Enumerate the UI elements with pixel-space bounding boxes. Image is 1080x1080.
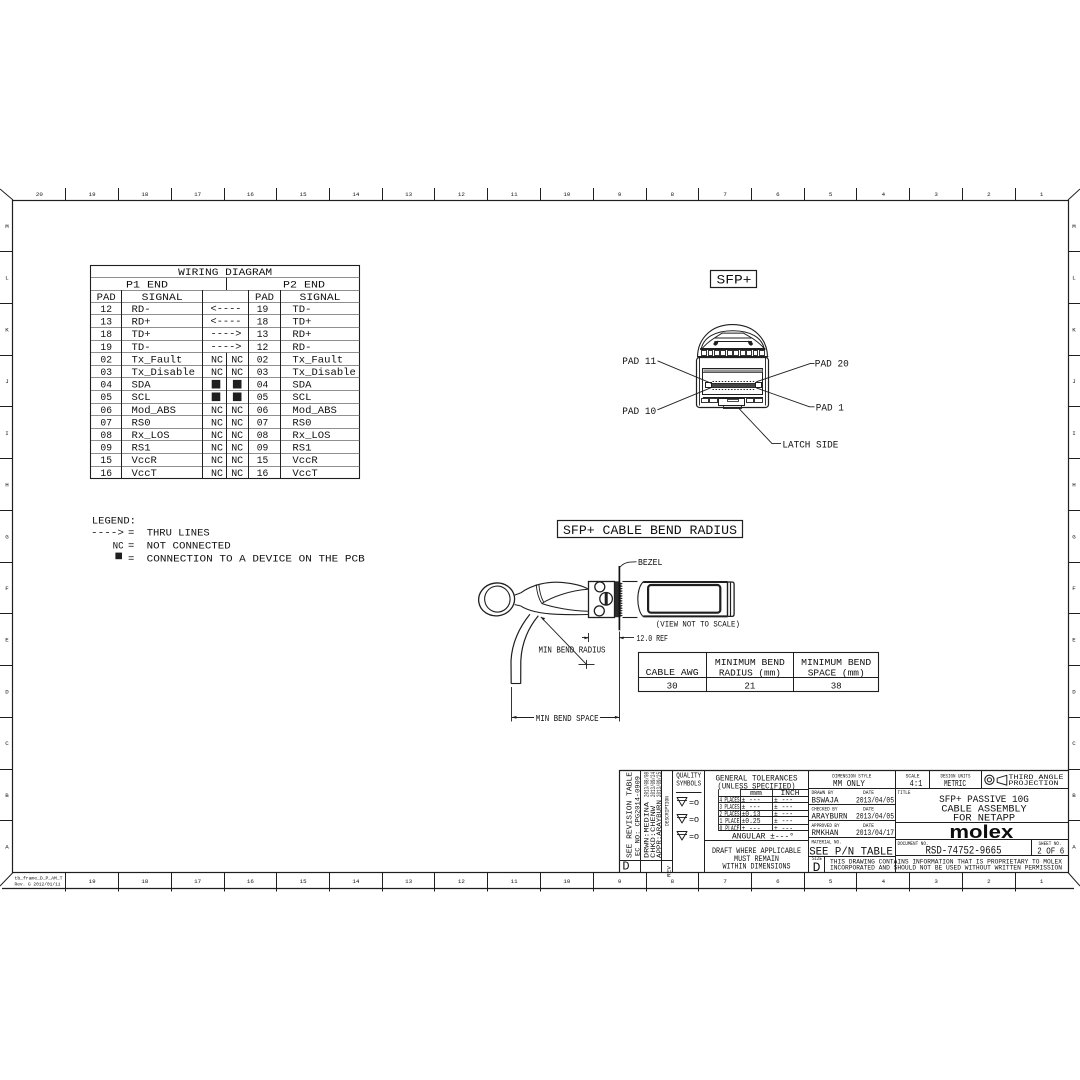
svg-text:BEZEL: BEZEL <box>638 558 662 568</box>
svg-text:PROJECTION: PROJECTION <box>1009 780 1059 787</box>
svg-text:TD+: TD+ <box>132 329 151 341</box>
svg-text:C: C <box>5 740 9 747</box>
svg-text:2: 2 <box>987 191 991 198</box>
svg-text:WIRING DIAGRAM: WIRING DIAGRAM <box>178 267 272 279</box>
svg-text:Rx_LOS: Rx_LOS <box>292 430 330 442</box>
svg-text:Tx_Disable: Tx_Disable <box>292 367 356 379</box>
svg-text:F: F <box>5 585 9 592</box>
svg-text:TD-: TD- <box>132 342 151 354</box>
svg-text:TITLE: TITLE <box>898 789 912 796</box>
svg-text:16: 16 <box>247 878 254 885</box>
svg-text:SCL: SCL <box>132 392 151 404</box>
svg-text:PAD: PAD <box>255 292 274 304</box>
svg-text:18: 18 <box>141 191 148 198</box>
svg-text:RD+: RD+ <box>132 317 151 329</box>
svg-text:18: 18 <box>141 878 148 885</box>
svg-text:D: D <box>5 688 9 695</box>
svg-text:RS1: RS1 <box>292 443 311 455</box>
svg-text:I: I <box>1072 430 1075 437</box>
svg-text:NC: NC <box>211 355 223 366</box>
svg-text:---->: ----> <box>211 330 242 341</box>
svg-text:DESCRIPTION: DESCRIPTION <box>665 796 671 826</box>
svg-text:19: 19 <box>257 304 269 316</box>
svg-text:Rx_LOS: Rx_LOS <box>132 430 170 442</box>
svg-text:H: H <box>1072 482 1076 489</box>
svg-text:09: 09 <box>257 443 269 455</box>
svg-text:(VIEW NOT TO SCALE): (VIEW NOT TO SCALE) <box>656 620 740 629</box>
svg-text:F: F <box>1072 585 1076 592</box>
svg-text:16: 16 <box>247 191 254 198</box>
svg-text:=O: =O <box>689 817 700 825</box>
svg-text:A: A <box>1072 844 1076 851</box>
svg-text:12.0 REF: 12.0 REF <box>637 634 669 644</box>
svg-text:E: E <box>1072 637 1076 644</box>
svg-text:18: 18 <box>100 329 112 341</box>
svg-text:SPACE (mm): SPACE (mm) <box>808 667 865 678</box>
svg-text:PAD 20: PAD 20 <box>815 360 849 371</box>
svg-text:4: 4 <box>882 191 886 198</box>
svg-text:VccR: VccR <box>292 455 318 467</box>
svg-text:6: 6 <box>776 878 780 885</box>
svg-text:08: 08 <box>100 430 112 442</box>
svg-text:2: 2 <box>987 878 991 885</box>
svg-text:RD+: RD+ <box>292 329 311 341</box>
svg-text:SFP+: SFP+ <box>717 274 752 288</box>
svg-text:ARAYBURN: ARAYBURN <box>812 812 848 822</box>
svg-text:B: B <box>1072 792 1076 799</box>
svg-text:PAD: PAD <box>97 292 116 304</box>
svg-text:MIN BEND RADIUS: MIN BEND RADIUS <box>539 646 606 656</box>
svg-text:03: 03 <box>100 367 112 379</box>
svg-text:05: 05 <box>100 392 112 404</box>
svg-text:NC: NC <box>231 431 243 442</box>
svg-text:2013/04/05: 2013/04/05 <box>856 812 894 822</box>
svg-text:NC: NC <box>231 406 243 417</box>
svg-text:13: 13 <box>405 878 412 885</box>
svg-text:=O: =O <box>689 800 700 808</box>
svg-text:SIGNAL: SIGNAL <box>142 292 183 304</box>
svg-text:WITHIN DIMENSIONS: WITHIN DIMENSIONS <box>723 862 791 871</box>
svg-text:LATCH SIDE: LATCH SIDE <box>782 440 838 451</box>
svg-text:3: 3 <box>934 878 938 885</box>
svg-text:L: L <box>5 275 9 282</box>
svg-text:LEGEND:: LEGEND: <box>92 516 136 528</box>
svg-text:16: 16 <box>100 468 112 480</box>
svg-text:PAD 1: PAD 1 <box>816 404 844 415</box>
svg-text:5: 5 <box>829 878 833 885</box>
svg-text:2013/09/25: 2013/09/25 <box>656 772 663 797</box>
svg-text:12: 12 <box>458 191 465 198</box>
svg-text:15: 15 <box>300 191 307 198</box>
svg-text:BSWAJA: BSWAJA <box>812 796 840 806</box>
svg-text:NC: NC <box>231 418 243 429</box>
svg-text:I: I <box>5 430 8 437</box>
svg-text:19: 19 <box>89 191 96 198</box>
svg-text:SDA: SDA <box>132 380 152 392</box>
svg-text:J: J <box>5 378 8 385</box>
svg-text:2013/04/17: 2013/04/17 <box>856 828 894 838</box>
svg-text:38: 38 <box>831 680 842 691</box>
svg-text:12: 12 <box>458 878 465 885</box>
svg-text:21: 21 <box>744 680 755 691</box>
svg-text:02: 02 <box>100 354 112 366</box>
svg-text:NC: NC <box>211 469 223 480</box>
svg-text:VccR: VccR <box>132 455 158 467</box>
svg-text:1: 1 <box>1040 878 1044 885</box>
svg-text:<----: <---- <box>211 317 242 328</box>
svg-text:D: D <box>1072 688 1076 695</box>
svg-text:RS0: RS0 <box>132 417 151 429</box>
svg-text:M: M <box>5 223 9 230</box>
svg-text:1: 1 <box>1040 191 1044 198</box>
svg-text:06: 06 <box>100 405 112 417</box>
svg-text:C: C <box>1072 740 1076 747</box>
svg-text:NOT CONNECTED: NOT CONNECTED <box>147 541 231 553</box>
svg-text:SDA: SDA <box>292 380 312 392</box>
svg-text:G: G <box>5 533 9 540</box>
svg-text:Tx_Fault: Tx_Fault <box>132 354 183 366</box>
svg-text:7: 7 <box>723 191 727 198</box>
svg-text:RD-: RD- <box>132 304 151 316</box>
svg-text:16: 16 <box>257 468 269 480</box>
svg-text:A: A <box>5 844 9 851</box>
svg-text:=: = <box>128 541 134 553</box>
svg-text:3: 3 <box>934 191 938 198</box>
svg-text:9: 9 <box>618 191 622 198</box>
svg-text:NC: NC <box>231 444 243 455</box>
svg-text:TD+: TD+ <box>292 317 311 329</box>
svg-text:19: 19 <box>89 878 96 885</box>
svg-text:6: 6 <box>776 191 780 198</box>
svg-text:04: 04 <box>257 380 269 392</box>
svg-text:11: 11 <box>511 191 518 198</box>
svg-text:10: 10 <box>563 191 570 198</box>
svg-text:METRIC: METRIC <box>944 779 966 789</box>
svg-text:Mod_ABS: Mod_ABS <box>292 405 336 417</box>
svg-text:Rev. G 2012/01/11: Rev. G 2012/01/11 <box>15 881 61 887</box>
svg-text:G: G <box>1072 533 1076 540</box>
svg-text:18: 18 <box>257 317 269 329</box>
svg-text:15: 15 <box>257 455 269 467</box>
svg-text:17: 17 <box>194 878 201 885</box>
svg-text:M: M <box>1072 223 1076 230</box>
svg-text:P2 END: P2 END <box>283 280 325 292</box>
svg-text:NC: NC <box>211 418 223 429</box>
svg-text:11: 11 <box>511 878 518 885</box>
svg-text:5: 5 <box>829 191 833 198</box>
svg-text:07: 07 <box>100 417 112 429</box>
svg-text:14: 14 <box>352 191 359 198</box>
svg-text:7: 7 <box>723 878 727 885</box>
svg-text:19: 19 <box>100 342 112 354</box>
svg-text:02: 02 <box>257 354 269 366</box>
svg-text:13: 13 <box>257 329 269 341</box>
svg-text:13: 13 <box>100 317 112 329</box>
svg-text:8: 8 <box>671 878 675 885</box>
svg-text:J: J <box>1072 378 1075 385</box>
svg-text:NC: NC <box>231 456 243 467</box>
svg-text:NC: NC <box>211 444 223 455</box>
svg-text:NC: NC <box>231 469 243 480</box>
svg-text:RSD-74752-9665: RSD-74752-9665 <box>926 846 1002 858</box>
svg-text:REV: REV <box>667 866 673 877</box>
svg-text:07: 07 <box>257 417 269 429</box>
svg-text:Tx_Fault: Tx_Fault <box>292 354 343 366</box>
svg-text:H: H <box>5 482 9 489</box>
svg-text:Tx_Disable: Tx_Disable <box>132 367 196 379</box>
svg-text:=: = <box>128 553 134 565</box>
svg-text:04: 04 <box>100 380 112 392</box>
svg-text:12: 12 <box>257 342 269 354</box>
svg-text:SEE REVISION TABLE: SEE REVISION TABLE <box>627 771 635 858</box>
svg-text:RS1: RS1 <box>132 443 151 455</box>
svg-text:05: 05 <box>257 392 269 404</box>
svg-text:NC: NC <box>211 368 223 379</box>
svg-text:EC NO: CPG2014-0909: EC NO: CPG2014-0909 <box>635 776 642 856</box>
svg-text:17: 17 <box>194 191 201 198</box>
svg-text:08: 08 <box>257 430 269 442</box>
svg-text:13: 13 <box>405 191 412 198</box>
svg-text:SFP+ CABLE BEND RADIUS: SFP+ CABLE BEND RADIUS <box>563 524 737 538</box>
svg-text:14: 14 <box>352 878 359 885</box>
svg-text:NC: NC <box>113 541 124 553</box>
svg-text:<----: <---- <box>211 305 242 316</box>
svg-text:SIGNAL: SIGNAL <box>300 292 341 304</box>
svg-text:APPR:ARAYBURN: APPR:ARAYBURN <box>656 800 663 858</box>
svg-text:CONNECTION TO A DEVICE ON THE: CONNECTION TO A DEVICE ON THE PCB <box>147 553 365 565</box>
svg-text:Mod_ABS: Mod_ABS <box>132 405 176 417</box>
svg-text:03: 03 <box>257 367 269 379</box>
svg-text:2 OF 6: 2 OF 6 <box>1037 846 1064 857</box>
svg-text:RADIUS (mm): RADIUS (mm) <box>719 667 781 678</box>
svg-text:12: 12 <box>100 304 112 316</box>
svg-text:L: L <box>1072 275 1076 282</box>
svg-text:20: 20 <box>36 191 43 198</box>
svg-text:SYMBOLS: SYMBOLS <box>676 781 701 789</box>
svg-text:2013/04/05: 2013/04/05 <box>856 796 894 806</box>
svg-text:4:1: 4:1 <box>910 779 923 789</box>
svg-text:D: D <box>813 860 821 875</box>
svg-text:NC: NC <box>231 355 243 366</box>
svg-text:B: B <box>5 792 9 799</box>
svg-text:INCORPORATED AND SHOULD NOT BE: INCORPORATED AND SHOULD NOT BE USED WITH… <box>830 865 1062 872</box>
svg-text:09: 09 <box>100 443 112 455</box>
svg-text:---->: ----> <box>91 528 124 540</box>
svg-text:NC: NC <box>211 431 223 442</box>
svg-text:RMKHAN: RMKHAN <box>812 828 839 838</box>
svg-text:QUALITY: QUALITY <box>676 773 701 781</box>
svg-text:D: D <box>622 860 629 874</box>
svg-text:RS0: RS0 <box>292 417 311 429</box>
svg-text:NC: NC <box>231 368 243 379</box>
svg-text:K: K <box>5 326 9 333</box>
svg-text:10: 10 <box>563 878 570 885</box>
svg-text:RD-: RD- <box>292 342 311 354</box>
svg-text:15: 15 <box>100 455 112 467</box>
svg-text:9: 9 <box>618 878 622 885</box>
svg-text:06: 06 <box>257 405 269 417</box>
svg-text:VccT: VccT <box>132 468 157 480</box>
svg-text:P1 END: P1 END <box>126 280 168 292</box>
svg-text:NC: NC <box>211 406 223 417</box>
svg-text:MIN BEND SPACE: MIN BEND SPACE <box>536 714 599 724</box>
svg-text:PAD 10: PAD 10 <box>622 407 656 418</box>
svg-text:4: 4 <box>882 878 886 885</box>
svg-text:DOCUMENT NO.: DOCUMENT NO. <box>898 840 929 847</box>
svg-text:NC: NC <box>211 456 223 467</box>
svg-text:=O: =O <box>689 834 700 842</box>
svg-text:8: 8 <box>671 191 675 198</box>
svg-text:=: = <box>128 528 134 540</box>
svg-text:E: E <box>5 637 9 644</box>
svg-text:---->: ----> <box>211 342 242 353</box>
svg-text:THRU LINES: THRU LINES <box>147 528 210 540</box>
svg-text:30: 30 <box>667 680 678 691</box>
svg-text:K: K <box>1072 326 1076 333</box>
svg-text:VccT: VccT <box>292 468 317 480</box>
svg-text:MATERIAL NO.: MATERIAL NO. <box>812 838 842 845</box>
svg-text:TD-: TD- <box>292 304 311 316</box>
svg-text:15: 15 <box>300 878 307 885</box>
svg-text:MM ONLY: MM ONLY <box>833 779 866 789</box>
svg-text:PAD 11: PAD 11 <box>622 357 656 368</box>
svg-text:tb_frame_D_P_AM_T: tb_frame_D_P_AM_T <box>15 875 63 881</box>
svg-text:CABLE AWG: CABLE AWG <box>646 667 699 678</box>
svg-text:SCL: SCL <box>292 392 311 404</box>
